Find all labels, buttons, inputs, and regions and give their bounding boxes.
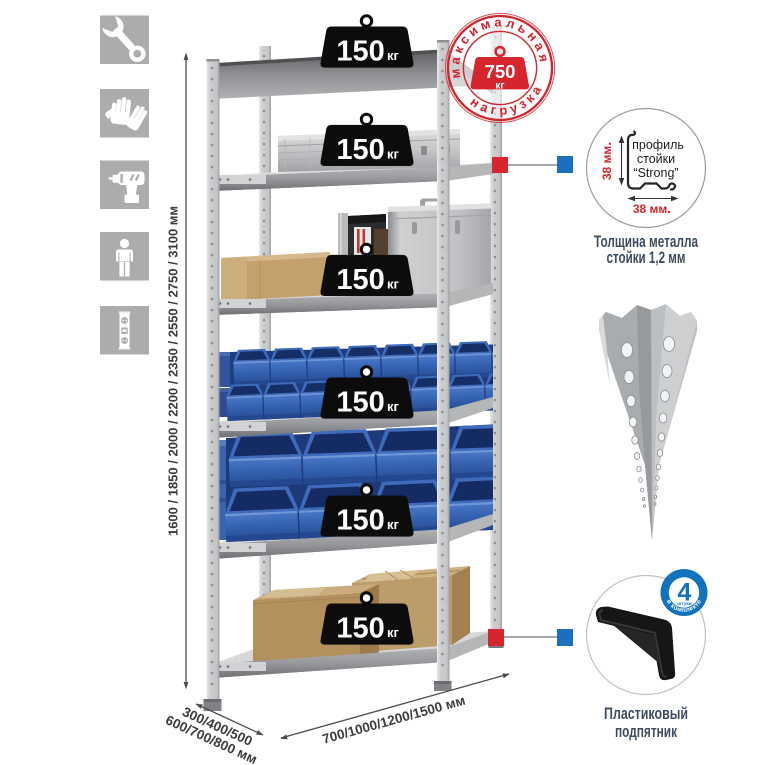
svg-text:38 мм.: 38 мм. xyxy=(598,142,614,180)
svg-text:750: 750 xyxy=(485,61,516,82)
svg-text:“Strong”: “Strong” xyxy=(633,166,678,180)
svg-text:1600 / 1850 / 2000 / 2200 / 23: 1600 / 1850 / 2000 / 2200 / 2350 / 2550 … xyxy=(166,206,181,536)
svg-text:кг: кг xyxy=(495,81,504,92)
svg-text:38 мм.: 38 мм. xyxy=(633,200,671,216)
svg-text:профиль: профиль xyxy=(632,138,684,152)
svg-text:подпятник: подпятник xyxy=(615,723,678,741)
svg-text:стойки 1,2 мм: стойки 1,2 мм xyxy=(607,249,686,267)
svg-text:Пластиковый: Пластиковый xyxy=(604,705,688,723)
svg-text:стойки: стойки xyxy=(637,152,675,166)
